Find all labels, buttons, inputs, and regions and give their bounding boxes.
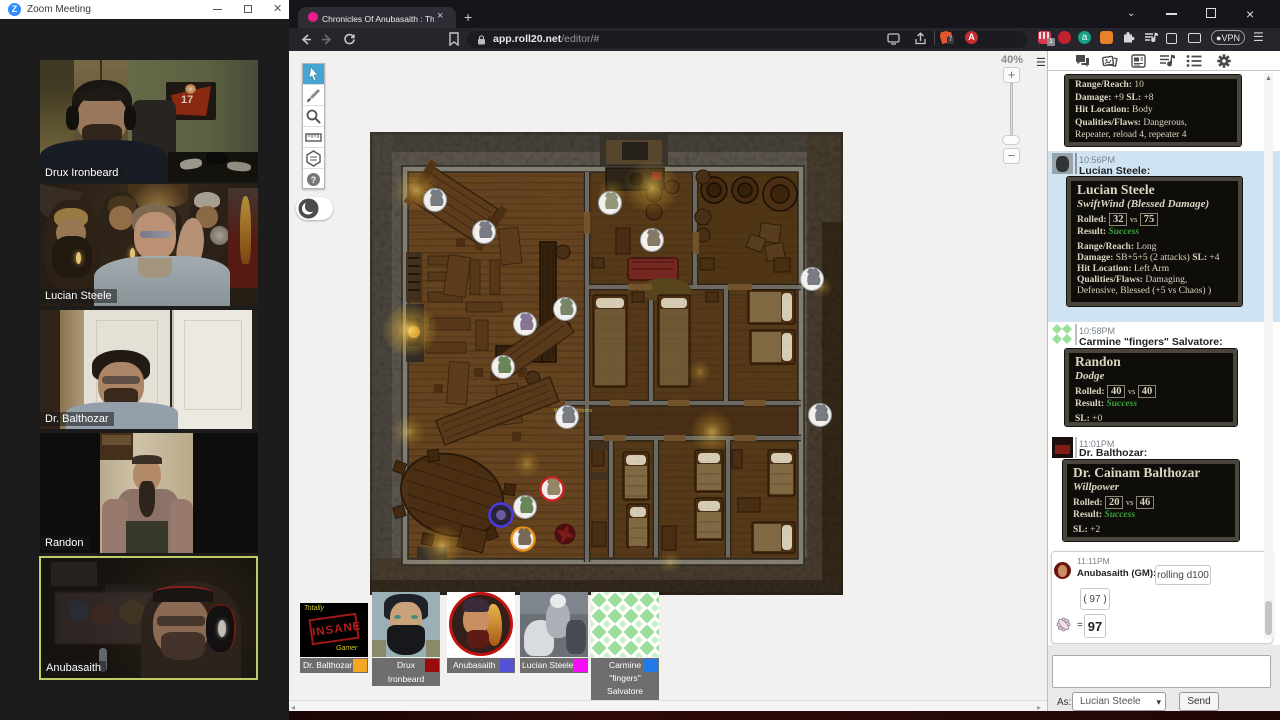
svg-text:?: ?: [311, 175, 317, 185]
